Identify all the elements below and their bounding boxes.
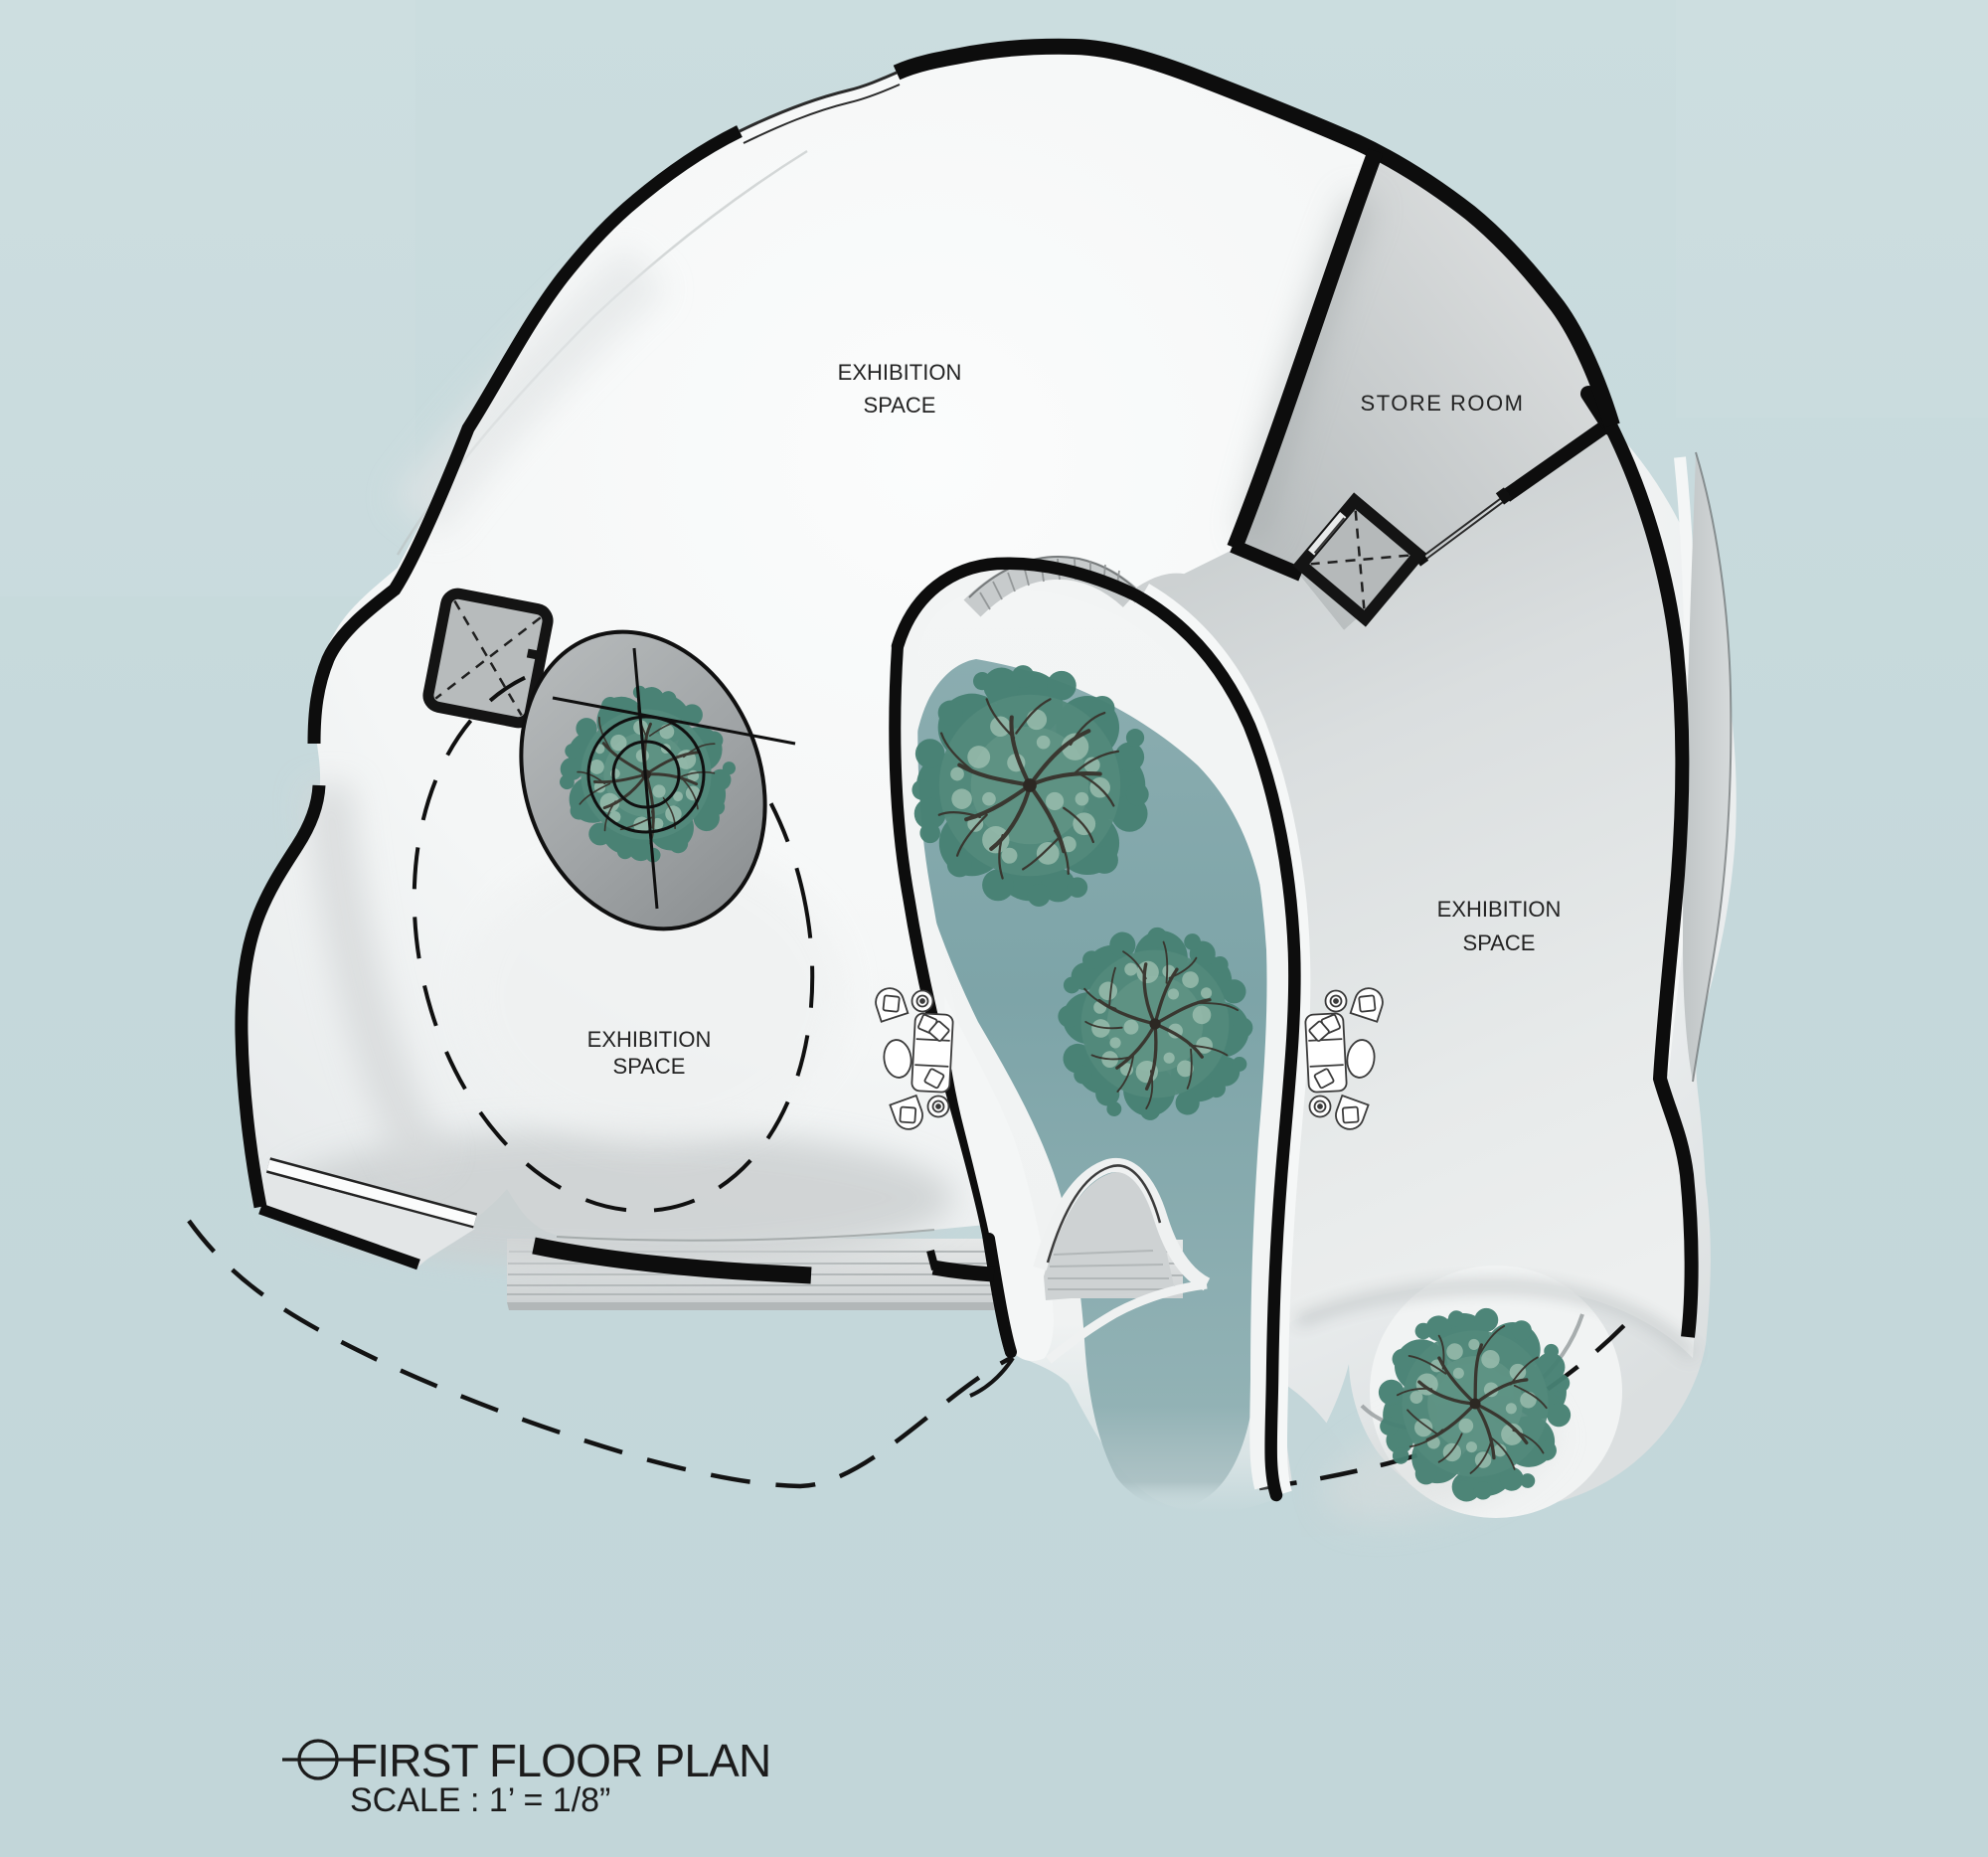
svg-text:STORE ROOM: STORE ROOM — [1361, 391, 1525, 416]
svg-text:SCALE : 1’ = 1/8”: SCALE : 1’ = 1/8” — [350, 1781, 610, 1819]
svg-text:SPACE: SPACE — [864, 393, 936, 418]
svg-text:SPACE: SPACE — [613, 1054, 686, 1079]
svg-text:FIRST FLOOR PLAN: FIRST FLOOR PLAN — [350, 1735, 770, 1786]
svg-text:EXHIBITION: EXHIBITION — [838, 360, 962, 385]
svg-text:SPACE: SPACE — [1463, 930, 1536, 955]
svg-text:EXHIBITION: EXHIBITION — [1437, 897, 1562, 922]
svg-text:EXHIBITION: EXHIBITION — [587, 1027, 712, 1052]
